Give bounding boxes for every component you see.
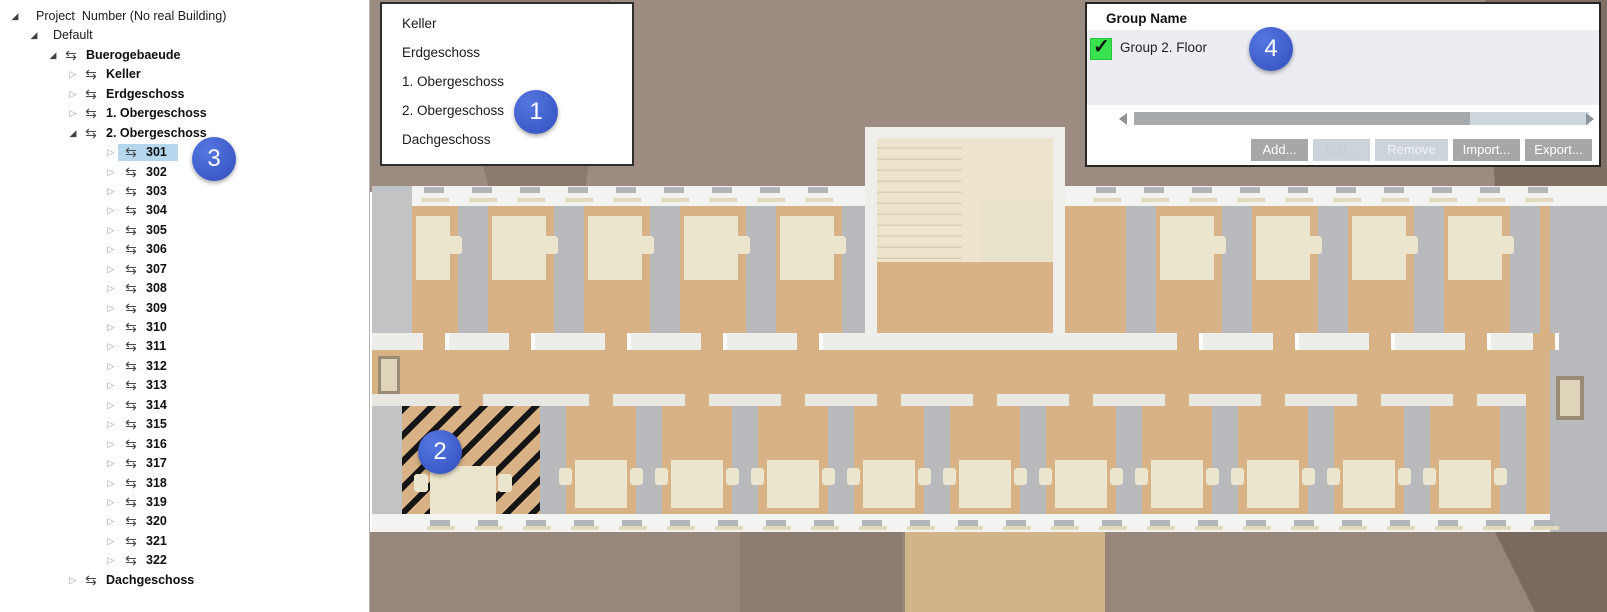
swap-arrows-icon: ⇆	[60, 46, 82, 64]
swap-arrows-icon: ⇆	[120, 474, 142, 492]
collapse-arrow-icon[interactable]: ▷	[104, 318, 118, 337]
collapse-arrow-icon[interactable]: ▷	[104, 221, 118, 240]
tree-item-309[interactable]: ▷⇆309	[0, 299, 369, 318]
swap-arrows-icon: ⇆	[120, 221, 142, 239]
tree-item-label: 2. Obergeschoss	[106, 124, 207, 143]
swap-arrows-icon: ⇆	[80, 65, 102, 83]
group-checkbox[interactable]: ✓	[1090, 38, 1112, 60]
tree-item-319[interactable]: ▷⇆319	[0, 493, 369, 512]
tree-item-label: Dachgeschoss	[106, 571, 194, 590]
collapse-arrow-icon[interactable]: ▷	[104, 415, 118, 434]
group-panel-header: Group Name	[1106, 8, 1187, 30]
collapse-arrow-icon[interactable]: ▷	[104, 201, 118, 220]
tree-item-label: 313	[146, 376, 167, 395]
swap-arrows-icon: ⇆	[120, 182, 142, 200]
tree-item-label: 304	[146, 201, 167, 220]
swap-arrows-icon: ⇆	[120, 279, 142, 297]
floor-menu-item-erdgeschoss[interactable]: Erdgeschoss	[382, 38, 632, 67]
tree-item-303[interactable]: ▷⇆303	[0, 182, 369, 201]
tree-item-312[interactable]: ▷⇆312	[0, 357, 369, 376]
tree-item-label: 1. Obergeschoss	[106, 104, 207, 123]
collapse-arrow-icon[interactable]: ▷	[104, 474, 118, 493]
collapse-arrow-icon[interactable]: ▷	[104, 337, 118, 356]
collapse-arrow-icon[interactable]: ▷	[66, 571, 80, 590]
tree-item-2-obergeschoss[interactable]: ◢⇆2. Obergeschoss	[0, 124, 369, 143]
tree-item-302[interactable]: ▷⇆302	[0, 163, 369, 182]
collapse-arrow-icon[interactable]: ▷	[104, 163, 118, 182]
swap-arrows-icon: ⇆	[80, 104, 102, 122]
tree-item-306[interactable]: ▷⇆306	[0, 240, 369, 259]
tree-item-label: 309	[146, 299, 167, 318]
tree-item-label: 301	[146, 143, 167, 162]
tree-item-dachgeschoss[interactable]: ▷⇆Dachgeschoss	[0, 571, 369, 590]
expand-arrow-icon[interactable]: ◢	[8, 7, 22, 26]
scrollbar-track[interactable]	[1470, 112, 1589, 125]
tree-item-308[interactable]: ▷⇆308	[0, 279, 369, 298]
tree-item-label: 305	[146, 221, 167, 240]
checkmark-icon: ✓	[1093, 34, 1110, 59]
remove-button[interactable]: Remove	[1375, 139, 1448, 161]
tree-item-keller[interactable]: ▷⇆Keller	[0, 65, 369, 84]
tree-item-label: 307	[146, 260, 167, 279]
swap-arrows-icon: ⇆	[80, 85, 102, 103]
floor-menu-item-1-obergeschoss[interactable]: 1. Obergeschoss	[382, 67, 632, 96]
tree-item-316[interactable]: ▷⇆316	[0, 435, 369, 454]
tree-item-321[interactable]: ▷⇆321	[0, 532, 369, 551]
tree-item-315[interactable]: ▷⇆315	[0, 415, 369, 434]
tree-item-label: 320	[146, 512, 167, 531]
tree-item-305[interactable]: ▷⇆305	[0, 221, 369, 240]
tree-item-1-obergeschoss[interactable]: ▷⇆1. Obergeschoss	[0, 104, 369, 123]
group-name-label: Group 2. Floor	[1120, 40, 1207, 55]
collapse-arrow-icon[interactable]: ▷	[104, 454, 118, 473]
swap-arrows-icon: ⇆	[120, 201, 142, 219]
tree-item-buerogebaeude[interactable]: ◢⇆Buerogebaeude	[0, 46, 369, 65]
swap-arrows-icon: ⇆	[120, 435, 142, 453]
tree-item-label: Erdgeschoss	[106, 85, 185, 104]
collapse-arrow-icon[interactable]: ▷	[104, 435, 118, 454]
collapse-arrow-icon[interactable]: ▷	[104, 493, 118, 512]
floor-menu-item-dachgeschoss[interactable]: Dachgeschoss	[382, 125, 632, 154]
tree-item-301[interactable]: ▷⇆301	[0, 143, 369, 162]
swap-arrows-icon: ⇆	[120, 396, 142, 414]
swap-arrows-icon: ⇆	[80, 571, 102, 589]
swap-arrows-icon: ⇆	[120, 240, 142, 258]
collapse-arrow-icon[interactable]: ▷	[66, 65, 80, 84]
collapse-arrow-icon[interactable]: ▷	[66, 104, 80, 123]
tree-item-label: Keller	[106, 65, 141, 84]
tree-item-label: 311	[146, 337, 166, 356]
collapse-arrow-icon[interactable]: ▷	[104, 260, 118, 279]
tree-item-label: 319	[146, 493, 167, 512]
tree-item-label: 310	[146, 318, 167, 337]
swap-arrows-icon: ⇆	[120, 163, 142, 181]
tree-item-label: 314	[146, 396, 167, 415]
tree-item-318[interactable]: ▷⇆318	[0, 474, 369, 493]
group-list-scrollbar[interactable]	[1087, 110, 1599, 128]
application-window: ◢Project Number (No real Building)◢Defau…	[0, 0, 1607, 612]
expand-arrow-icon[interactable]: ◢	[27, 26, 41, 45]
floor-dropdown-menu: KellerErdgeschoss1. Obergeschoss2. Oberg…	[380, 2, 634, 166]
expand-arrow-icon[interactable]: ◢	[46, 46, 60, 65]
collapse-arrow-icon[interactable]: ▷	[104, 551, 118, 570]
tree-item-label: 318	[146, 474, 167, 493]
swap-arrows-icon: ⇆	[120, 376, 142, 394]
collapse-arrow-icon[interactable]: ▷	[66, 85, 80, 104]
add-button[interactable]: Add...	[1251, 139, 1308, 161]
swap-arrows-icon: ⇆	[120, 551, 142, 569]
tree-item-label: 322	[146, 551, 167, 570]
callout-badge-3: 3	[192, 137, 236, 181]
group-list: ✓Group 2. Floor	[1087, 30, 1599, 105]
collapse-arrow-icon[interactable]: ▷	[104, 279, 118, 298]
tree-item-label: 321	[146, 532, 167, 551]
tree-item-label: 312	[146, 357, 167, 376]
tree-item-label: 306	[146, 240, 167, 259]
tree-item-320[interactable]: ▷⇆320	[0, 512, 369, 531]
scroll-right-arrow-icon[interactable]	[1586, 113, 1594, 125]
tree-item-311[interactable]: ▷⇆311	[0, 337, 369, 356]
group-panel: Group Name ✓Group 2. Floor Add...Edit...…	[1085, 2, 1601, 167]
group-row-group-2-floor[interactable]: ✓Group 2. Floor	[1087, 36, 1599, 64]
scrollbar-thumb[interactable]	[1134, 112, 1470, 125]
tree-item-313[interactable]: ▷⇆313	[0, 376, 369, 395]
collapse-arrow-icon[interactable]: ▷	[104, 143, 118, 162]
collapse-arrow-icon[interactable]: ▷	[104, 376, 118, 395]
tree-item-label: Default	[53, 26, 93, 45]
collapse-arrow-icon[interactable]: ▷	[104, 512, 118, 531]
callout-badge-4: 4	[1249, 27, 1293, 71]
scroll-left-arrow-icon[interactable]	[1119, 113, 1127, 125]
tree-item-label: 315	[146, 415, 167, 434]
tree-item-310[interactable]: ▷⇆310	[0, 318, 369, 337]
tree-item-307[interactable]: ▷⇆307	[0, 260, 369, 279]
tree-item-317[interactable]: ▷⇆317	[0, 454, 369, 473]
collapse-arrow-icon[interactable]: ▷	[104, 532, 118, 551]
export-button[interactable]: Export...	[1525, 139, 1592, 161]
tree-item-label: 308	[146, 279, 167, 298]
swap-arrows-icon: ⇆	[120, 260, 142, 278]
tree-item-erdgeschoss[interactable]: ▷⇆Erdgeschoss	[0, 85, 369, 104]
tree-item-default[interactable]: ◢Default	[0, 26, 369, 45]
swap-arrows-icon: ⇆	[120, 337, 142, 355]
collapse-arrow-icon[interactable]: ▷	[104, 182, 118, 201]
collapse-arrow-icon[interactable]: ▷	[104, 299, 118, 318]
swap-arrows-icon: ⇆	[80, 124, 102, 142]
tree-item-304[interactable]: ▷⇆304	[0, 201, 369, 220]
swap-arrows-icon: ⇆	[120, 415, 142, 433]
tree-item-label: 303	[146, 182, 167, 201]
group-panel-buttons: Add...Edit...RemoveImport...Export...	[1251, 139, 1592, 161]
tree-item-label: 302	[146, 163, 167, 182]
swap-arrows-icon: ⇆	[120, 143, 142, 161]
swap-arrows-icon: ⇆	[120, 532, 142, 550]
swap-arrows-icon: ⇆	[120, 454, 142, 472]
collapse-arrow-icon[interactable]: ▷	[104, 240, 118, 259]
callout-badge-2: 2	[418, 430, 462, 474]
tree-item-label: 317	[146, 454, 167, 473]
tree-item-label: 316	[146, 435, 167, 454]
edit-button[interactable]: Edit...	[1313, 139, 1370, 161]
floor-menu-item-keller[interactable]: Keller	[382, 9, 632, 38]
floor-menu-item-2-obergeschoss[interactable]: 2. Obergeschoss	[382, 96, 632, 125]
swap-arrows-icon: ⇆	[120, 493, 142, 511]
expand-arrow-icon[interactable]: ◢	[66, 124, 80, 143]
collapse-arrow-icon[interactable]: ▷	[104, 357, 118, 376]
swap-arrows-icon: ⇆	[120, 318, 142, 336]
tree-item-label: Buerogebaeude	[86, 46, 180, 65]
callout-badge-1: 1	[514, 90, 558, 134]
swap-arrows-icon: ⇆	[120, 299, 142, 317]
tree-item-label: Project Number (No real Building)	[36, 7, 226, 26]
tree-item-314[interactable]: ▷⇆314	[0, 396, 369, 415]
swap-arrows-icon: ⇆	[120, 512, 142, 530]
tree-item-project-number-no-real-building[interactable]: ◢Project Number (No real Building)	[0, 7, 369, 26]
swap-arrows-icon: ⇆	[120, 357, 142, 375]
collapse-arrow-icon[interactable]: ▷	[104, 396, 118, 415]
project-tree-panel: ◢Project Number (No real Building)◢Defau…	[0, 0, 370, 612]
import-button[interactable]: Import...	[1453, 139, 1520, 161]
tree-item-322[interactable]: ▷⇆322	[0, 551, 369, 570]
